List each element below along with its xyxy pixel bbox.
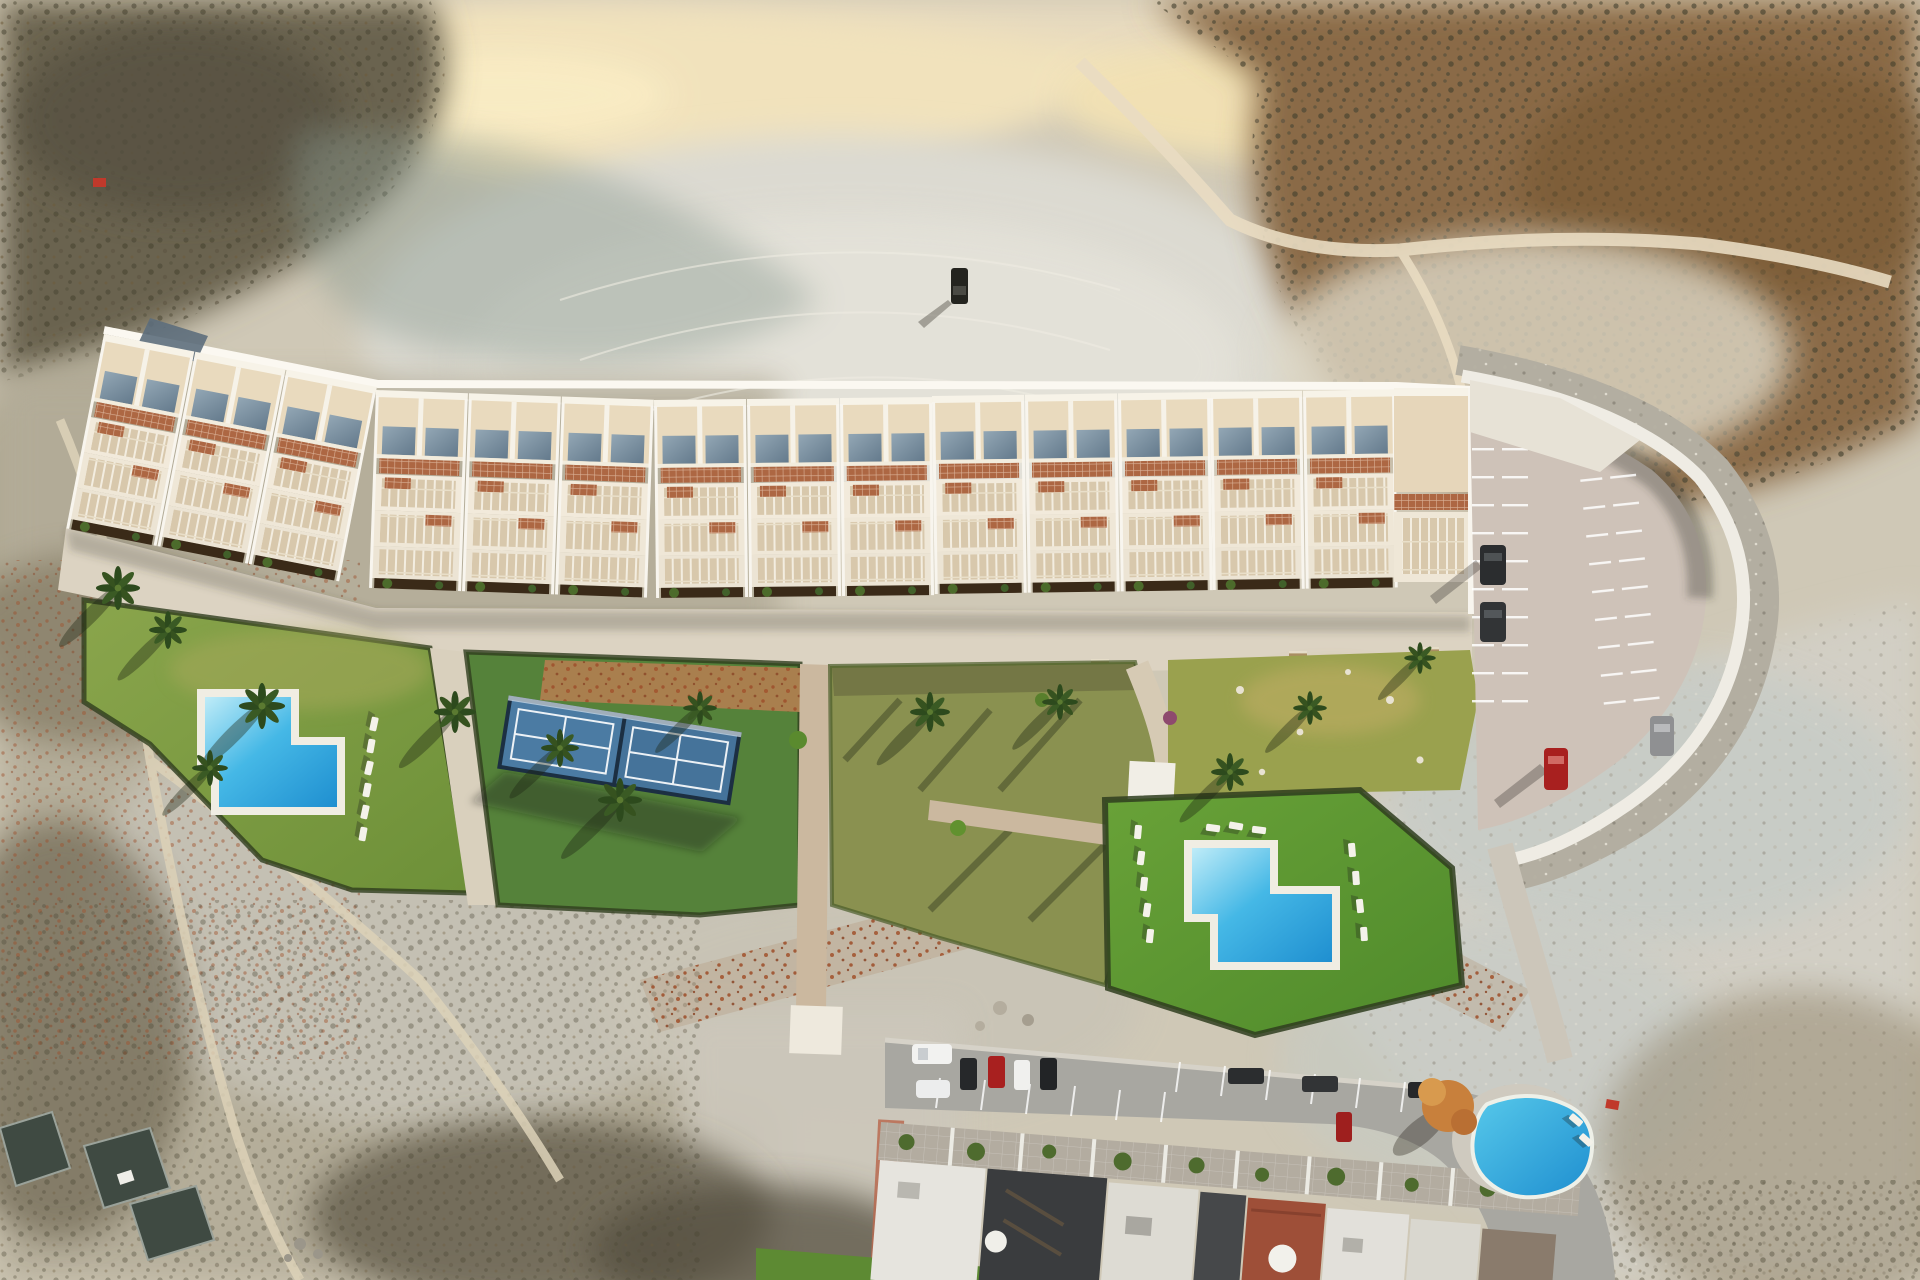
black-car-2 (1040, 1058, 1057, 1090)
house-roof-white-3 (1319, 1208, 1409, 1280)
shrub-1 (789, 731, 807, 749)
aerial-render-canvas (0, 0, 1920, 1280)
old-pool-water (1474, 1098, 1590, 1195)
car-red-parking (1544, 748, 1568, 790)
car-dark-2 (1480, 602, 1506, 642)
car-grey-parking (1650, 716, 1674, 756)
black-car-1 (960, 1058, 977, 1090)
garden-gate-pavilion (789, 1005, 843, 1055)
building-segment-d (932, 392, 1213, 594)
house-roof-white-1 (870, 1160, 985, 1280)
bottom-right-scrub-dots (1580, 1180, 1920, 1280)
house-roof-charcoal-2 (1191, 1192, 1246, 1280)
garden-path-vertical (796, 664, 830, 1012)
house-roof-taupe (1474, 1229, 1556, 1280)
white-car-2 (1014, 1060, 1030, 1090)
black-car-3 (1228, 1068, 1264, 1084)
building-segment-b (369, 390, 654, 598)
car-dark-1 (1480, 545, 1506, 585)
aerial-render (0, 0, 1920, 1280)
red-marker-left (93, 178, 106, 187)
purple-shrub (1163, 711, 1177, 725)
house-roof-grey (1403, 1219, 1481, 1280)
house-roof-charcoal-1 (978, 1169, 1107, 1280)
shrub-2 (950, 820, 966, 836)
black-car-4 (1302, 1076, 1338, 1092)
red-car-street-2 (1336, 1112, 1352, 1142)
building-end-cap (1394, 388, 1482, 614)
building-segment-c (654, 397, 934, 598)
red-car-street-1 (988, 1056, 1005, 1088)
white-car (916, 1080, 950, 1098)
scrub-dots-bottom (0, 900, 700, 1280)
